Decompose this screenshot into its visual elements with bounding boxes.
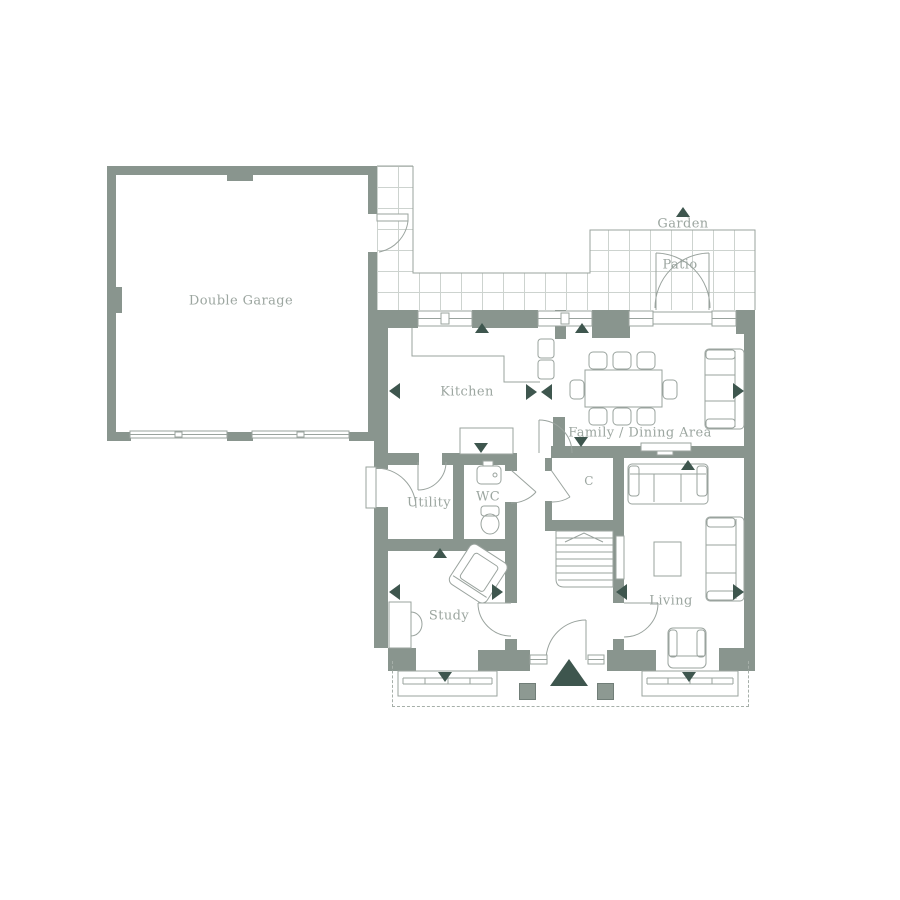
outdoor-label-patio: Patio: [662, 258, 697, 273]
wc-door-icon: [511, 470, 536, 503]
marker-icon: [616, 584, 627, 600]
garage-side-door-icon: [377, 214, 408, 252]
marker-icon: [433, 548, 447, 558]
path-edge-line: [377, 166, 755, 310]
wc-sink-icon: [477, 461, 501, 484]
floor-plan: Double Garage Kitchen Family / Dining Ar…: [0, 0, 900, 900]
marker-icon: [389, 383, 400, 399]
utility-door-icon: [418, 462, 446, 490]
room-label-cupboard: C: [584, 474, 594, 488]
marker-icon: [541, 384, 552, 400]
living-sofa-top-icon: [628, 464, 708, 504]
marker-icon: [474, 443, 488, 453]
garage-door-icon: [130, 431, 349, 438]
marker-icon: [681, 460, 695, 470]
porch-canopy-outline: [392, 661, 749, 707]
dining-table-icon: [570, 352, 677, 425]
room-label-living: Living: [649, 594, 692, 609]
wc-toilet-icon: [481, 506, 499, 534]
outdoor-label-garden: Garden: [657, 217, 708, 232]
front-door-icon: [530, 620, 604, 664]
tv-console-icon: [641, 443, 691, 455]
porch-pillar: [597, 683, 614, 700]
cupboard-door-icon: [551, 470, 570, 502]
room-label-utility: Utility: [407, 496, 451, 511]
coffee-table-icon: [654, 542, 681, 576]
kitchen-hall-door-icon: [539, 420, 572, 453]
marker-icon: [733, 584, 744, 600]
stairs-icon: [556, 531, 613, 587]
study-desk-icon: [389, 602, 422, 648]
room-label-kitchen: Kitchen: [440, 385, 494, 400]
room-label-double-garage: Double Garage: [189, 294, 293, 309]
marker-icon: [475, 323, 489, 333]
marker-icon: [526, 384, 537, 400]
marker-icon: [389, 584, 400, 600]
marker-icon: [492, 584, 503, 600]
room-label-wc: WC: [476, 490, 500, 505]
marker-icon: [733, 383, 744, 399]
room-label-study: Study: [429, 609, 469, 624]
room-label-family-dining: Family / Dining Area: [568, 426, 712, 441]
tv-icon: [616, 536, 624, 579]
linework-overlay: [0, 0, 900, 900]
study-door-icon: [478, 603, 511, 636]
porch-pillar: [519, 683, 536, 700]
garden-arrow-icon: [676, 207, 690, 217]
marker-icon: [575, 323, 589, 333]
